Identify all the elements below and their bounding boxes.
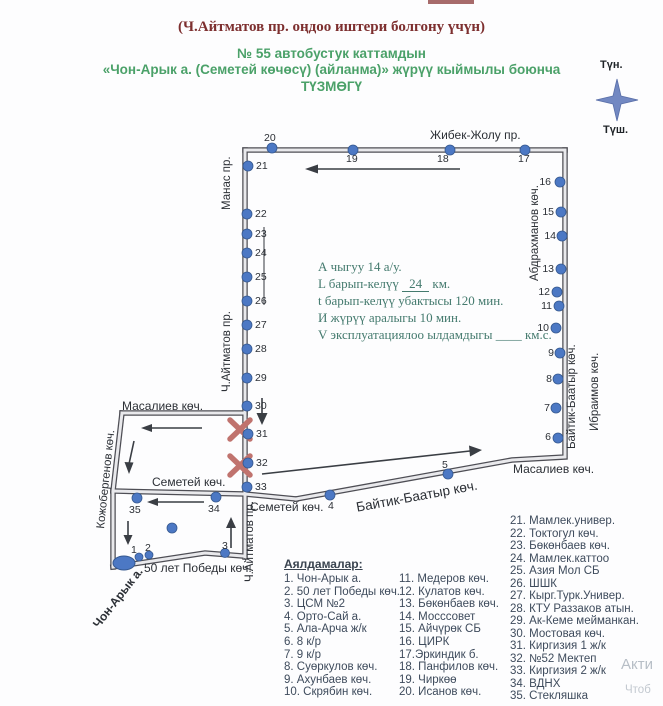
stop-24 bbox=[242, 248, 252, 258]
legend-item: 22. Токтогул көч. bbox=[510, 528, 639, 541]
legend-item: 17.Эркиндик б. bbox=[399, 649, 499, 662]
legend-item: 35. Стекляшка bbox=[510, 690, 639, 703]
info-distance: L барып-келүү 24 км. bbox=[318, 275, 552, 292]
info-speed: V эксплуатациялоо ылдамдыгы ____ км.с. bbox=[318, 326, 552, 343]
stop-label-24: 24 bbox=[255, 247, 267, 259]
watermark-fragment-1: Акти bbox=[621, 656, 653, 673]
legend-item: 2. 50 лет Победы көч. bbox=[284, 586, 400, 599]
street-label-semetei-left: Семетей көч. bbox=[152, 475, 225, 489]
legend-item: 30. Мостовая көч. bbox=[510, 628, 639, 641]
stop-label-15: 15 bbox=[538, 206, 554, 218]
stop-label-4: 4 bbox=[328, 500, 334, 512]
compass-star-icon bbox=[596, 79, 638, 121]
compass-north-label: Түн. bbox=[600, 59, 623, 71]
legend-item: 19. Чиркөө bbox=[399, 674, 499, 687]
stop-13 bbox=[556, 264, 566, 274]
street-label-masaliev-right: Масалиев көч. bbox=[513, 462, 594, 476]
stop-11 bbox=[554, 301, 564, 311]
bus-stops bbox=[132, 143, 567, 561]
stop-26 bbox=[242, 296, 252, 306]
route-scheme-page: (Ч.Айтматов пр. оңдоо иштери болгону үчү… bbox=[0, 0, 663, 706]
stop-label-3: 3 bbox=[222, 540, 228, 552]
legend-item: 31. Киргизия 1 ж/к bbox=[510, 640, 639, 653]
stop-label-23: 23 bbox=[255, 228, 267, 240]
legend-column-3: 21. Мамлек.универ. 22. Токтогул көч. 23.… bbox=[510, 515, 639, 703]
street-label-aitmatov-upper: Ч.Айтматов пр. bbox=[221, 311, 233, 392]
stop-15 bbox=[556, 207, 566, 217]
cutoff-text-fragment bbox=[428, 0, 474, 4]
stop-label-32: 32 bbox=[256, 457, 268, 469]
stop-12 bbox=[552, 287, 562, 297]
legend-item: 29. Ак-Кеме мейманкан. bbox=[510, 615, 639, 628]
stop-23 bbox=[242, 229, 252, 239]
legend-item: 5. Ала-Арча ж/к bbox=[284, 623, 400, 636]
arrow-kozhobergenov-south bbox=[129, 441, 134, 464]
stop-25 bbox=[242, 272, 252, 282]
street-label-pobedy: 50 лет Победы көч. bbox=[144, 561, 252, 575]
legend-item: 14. Мосссовет bbox=[399, 611, 499, 624]
stop-label-2: 2 bbox=[145, 542, 151, 554]
legend-item: 9. Ахунбаев көч. bbox=[284, 674, 400, 687]
stop-32 bbox=[243, 458, 253, 468]
stop-label-31: 31 bbox=[256, 428, 268, 440]
stop-16 bbox=[555, 177, 565, 187]
stop-label-33: 33 bbox=[255, 481, 267, 493]
info-interval: И жүрүү аралыгы 10 мин. bbox=[318, 309, 552, 326]
legend-item: 18. Панфилов көч. bbox=[399, 661, 499, 674]
stop-label-16: 16 bbox=[535, 176, 551, 188]
stop-label-22: 22 bbox=[255, 208, 267, 220]
stop-35 bbox=[132, 493, 142, 503]
info-speed-blank: ____ bbox=[496, 327, 522, 342]
legend-title: Аялдамалар: bbox=[284, 557, 363, 571]
route-info-block: А чыгуу 14 а/у. L барып-келүү 24 км. t б… bbox=[318, 258, 552, 343]
stop-label-20: 20 bbox=[264, 132, 276, 144]
stop-label-30: 30 bbox=[255, 400, 267, 412]
stop-7 bbox=[551, 403, 561, 413]
info-roundtrip-time: t барып-келүү убактысы 120 мин. bbox=[318, 292, 552, 309]
stop-21 bbox=[243, 161, 253, 171]
compass-south-label: Түш. bbox=[603, 124, 628, 136]
legend-item: 27. Кырг.Турк.Универ. bbox=[510, 590, 639, 603]
legend-item: 33. Киргизия 2 ж/к bbox=[510, 665, 639, 678]
stop-label-25: 25 bbox=[255, 271, 267, 283]
stop-label-26: 26 bbox=[255, 295, 267, 307]
stop-unnumbered bbox=[167, 523, 177, 533]
stop-14 bbox=[557, 231, 567, 241]
stop-30 bbox=[242, 401, 252, 411]
legend-item: 23. Бөкөнбаев көч. bbox=[510, 540, 639, 553]
street-label-semetei-right: Семетей көч. bbox=[250, 500, 323, 514]
legend-item: 26. ШШК bbox=[510, 578, 639, 591]
stop-label-7: 7 bbox=[534, 402, 550, 414]
stop-34 bbox=[211, 492, 221, 502]
info-departures: А чыгуу 14 а/у. bbox=[318, 258, 552, 275]
stop-label-8: 8 bbox=[536, 373, 552, 385]
legend-item: 28. КТУ Раззаков атын. bbox=[510, 603, 639, 616]
stop-6 bbox=[553, 433, 563, 443]
stop-9 bbox=[555, 348, 565, 358]
stop-20 bbox=[267, 143, 277, 153]
legend-item: 6. 8 к/р bbox=[284, 636, 400, 649]
stop-8 bbox=[553, 374, 563, 384]
legend-item: 24. Мамлек.каттоо bbox=[510, 553, 639, 566]
legend-item: 25. Азия Мол СБ bbox=[510, 565, 639, 578]
stop-29 bbox=[242, 373, 252, 383]
legend-item: 11. Медеров көч. bbox=[399, 573, 499, 586]
legend-column-2: 11. Медеров көч. 12. Кулатов көч. 13. Бө… bbox=[399, 573, 499, 699]
stop-label-14: 14 bbox=[540, 230, 556, 242]
legend-item: 21. Мамлек.универ. bbox=[510, 515, 639, 528]
stop-label-9: 9 bbox=[538, 347, 554, 359]
stop-label-35: 35 bbox=[129, 504, 141, 516]
legend-item: 32. №52 Мектеп bbox=[510, 653, 639, 666]
street-label-masaliev-left: Масалиев көч. bbox=[122, 399, 203, 413]
watermark-fragment-2: Чтоб bbox=[625, 684, 651, 696]
legend-item: 12. Кулатов көч. bbox=[399, 586, 499, 599]
stop-22 bbox=[242, 209, 252, 219]
stop-label-27: 27 bbox=[255, 319, 267, 331]
stop-label-19: 19 bbox=[346, 153, 358, 165]
info-distance-value: 24 bbox=[402, 276, 429, 292]
stop-label-6: 6 bbox=[535, 431, 551, 443]
stop-label-28: 28 bbox=[255, 343, 267, 355]
legend-item: 13. Бөкөнбаев көч. bbox=[399, 598, 499, 611]
stop-10 bbox=[551, 323, 561, 333]
road-fills bbox=[113, 150, 565, 567]
legend-item: 8. Суөркулов көч. bbox=[284, 661, 400, 674]
street-label-zhibek-zholu: Жибек-Жолу пр. bbox=[430, 128, 521, 142]
stop-label-17: 17 bbox=[518, 153, 530, 165]
stop-31 bbox=[243, 429, 253, 439]
legend-item: 34. ВДНХ bbox=[510, 678, 639, 691]
street-label-manas: Манас пр. bbox=[221, 156, 233, 210]
road-casings bbox=[113, 150, 565, 567]
street-label-baitik-vertical: Байтик-Баатыр көч. bbox=[566, 344, 578, 449]
stop-28 bbox=[242, 344, 252, 354]
legend-item: 3. ЦСМ №2 bbox=[284, 598, 400, 611]
legend-item: 1. Чон-Арык а. bbox=[284, 573, 400, 586]
legend-item: 4. Орто-Сай а. bbox=[284, 611, 400, 624]
legend-item: 7. 9 к/р bbox=[284, 649, 400, 662]
legend-item: 20. Исанов көч. bbox=[399, 686, 499, 699]
legend-item: 15. Айчүрөк СБ bbox=[399, 623, 499, 636]
stop-33 bbox=[242, 482, 252, 492]
stop-label-34: 34 bbox=[208, 503, 220, 515]
stop-label-5: 5 bbox=[442, 459, 448, 471]
legend-item: 10. Скрябин көч. bbox=[284, 686, 400, 699]
stop-4 bbox=[325, 490, 335, 500]
street-label-ibraimov: Ибраимов көч. bbox=[589, 353, 601, 431]
stop-label-21: 21 bbox=[256, 160, 268, 172]
stop-label-1: 1 bbox=[131, 544, 137, 556]
stop-label-29: 29 bbox=[255, 372, 267, 384]
stop-label-18: 18 bbox=[437, 153, 449, 165]
legend-column-1: 1. Чон-Арык а. 2. 50 лет Победы көч. 3. … bbox=[284, 573, 400, 699]
legend-item: 16. ЦИРК bbox=[399, 636, 499, 649]
stop-27 bbox=[242, 320, 252, 330]
